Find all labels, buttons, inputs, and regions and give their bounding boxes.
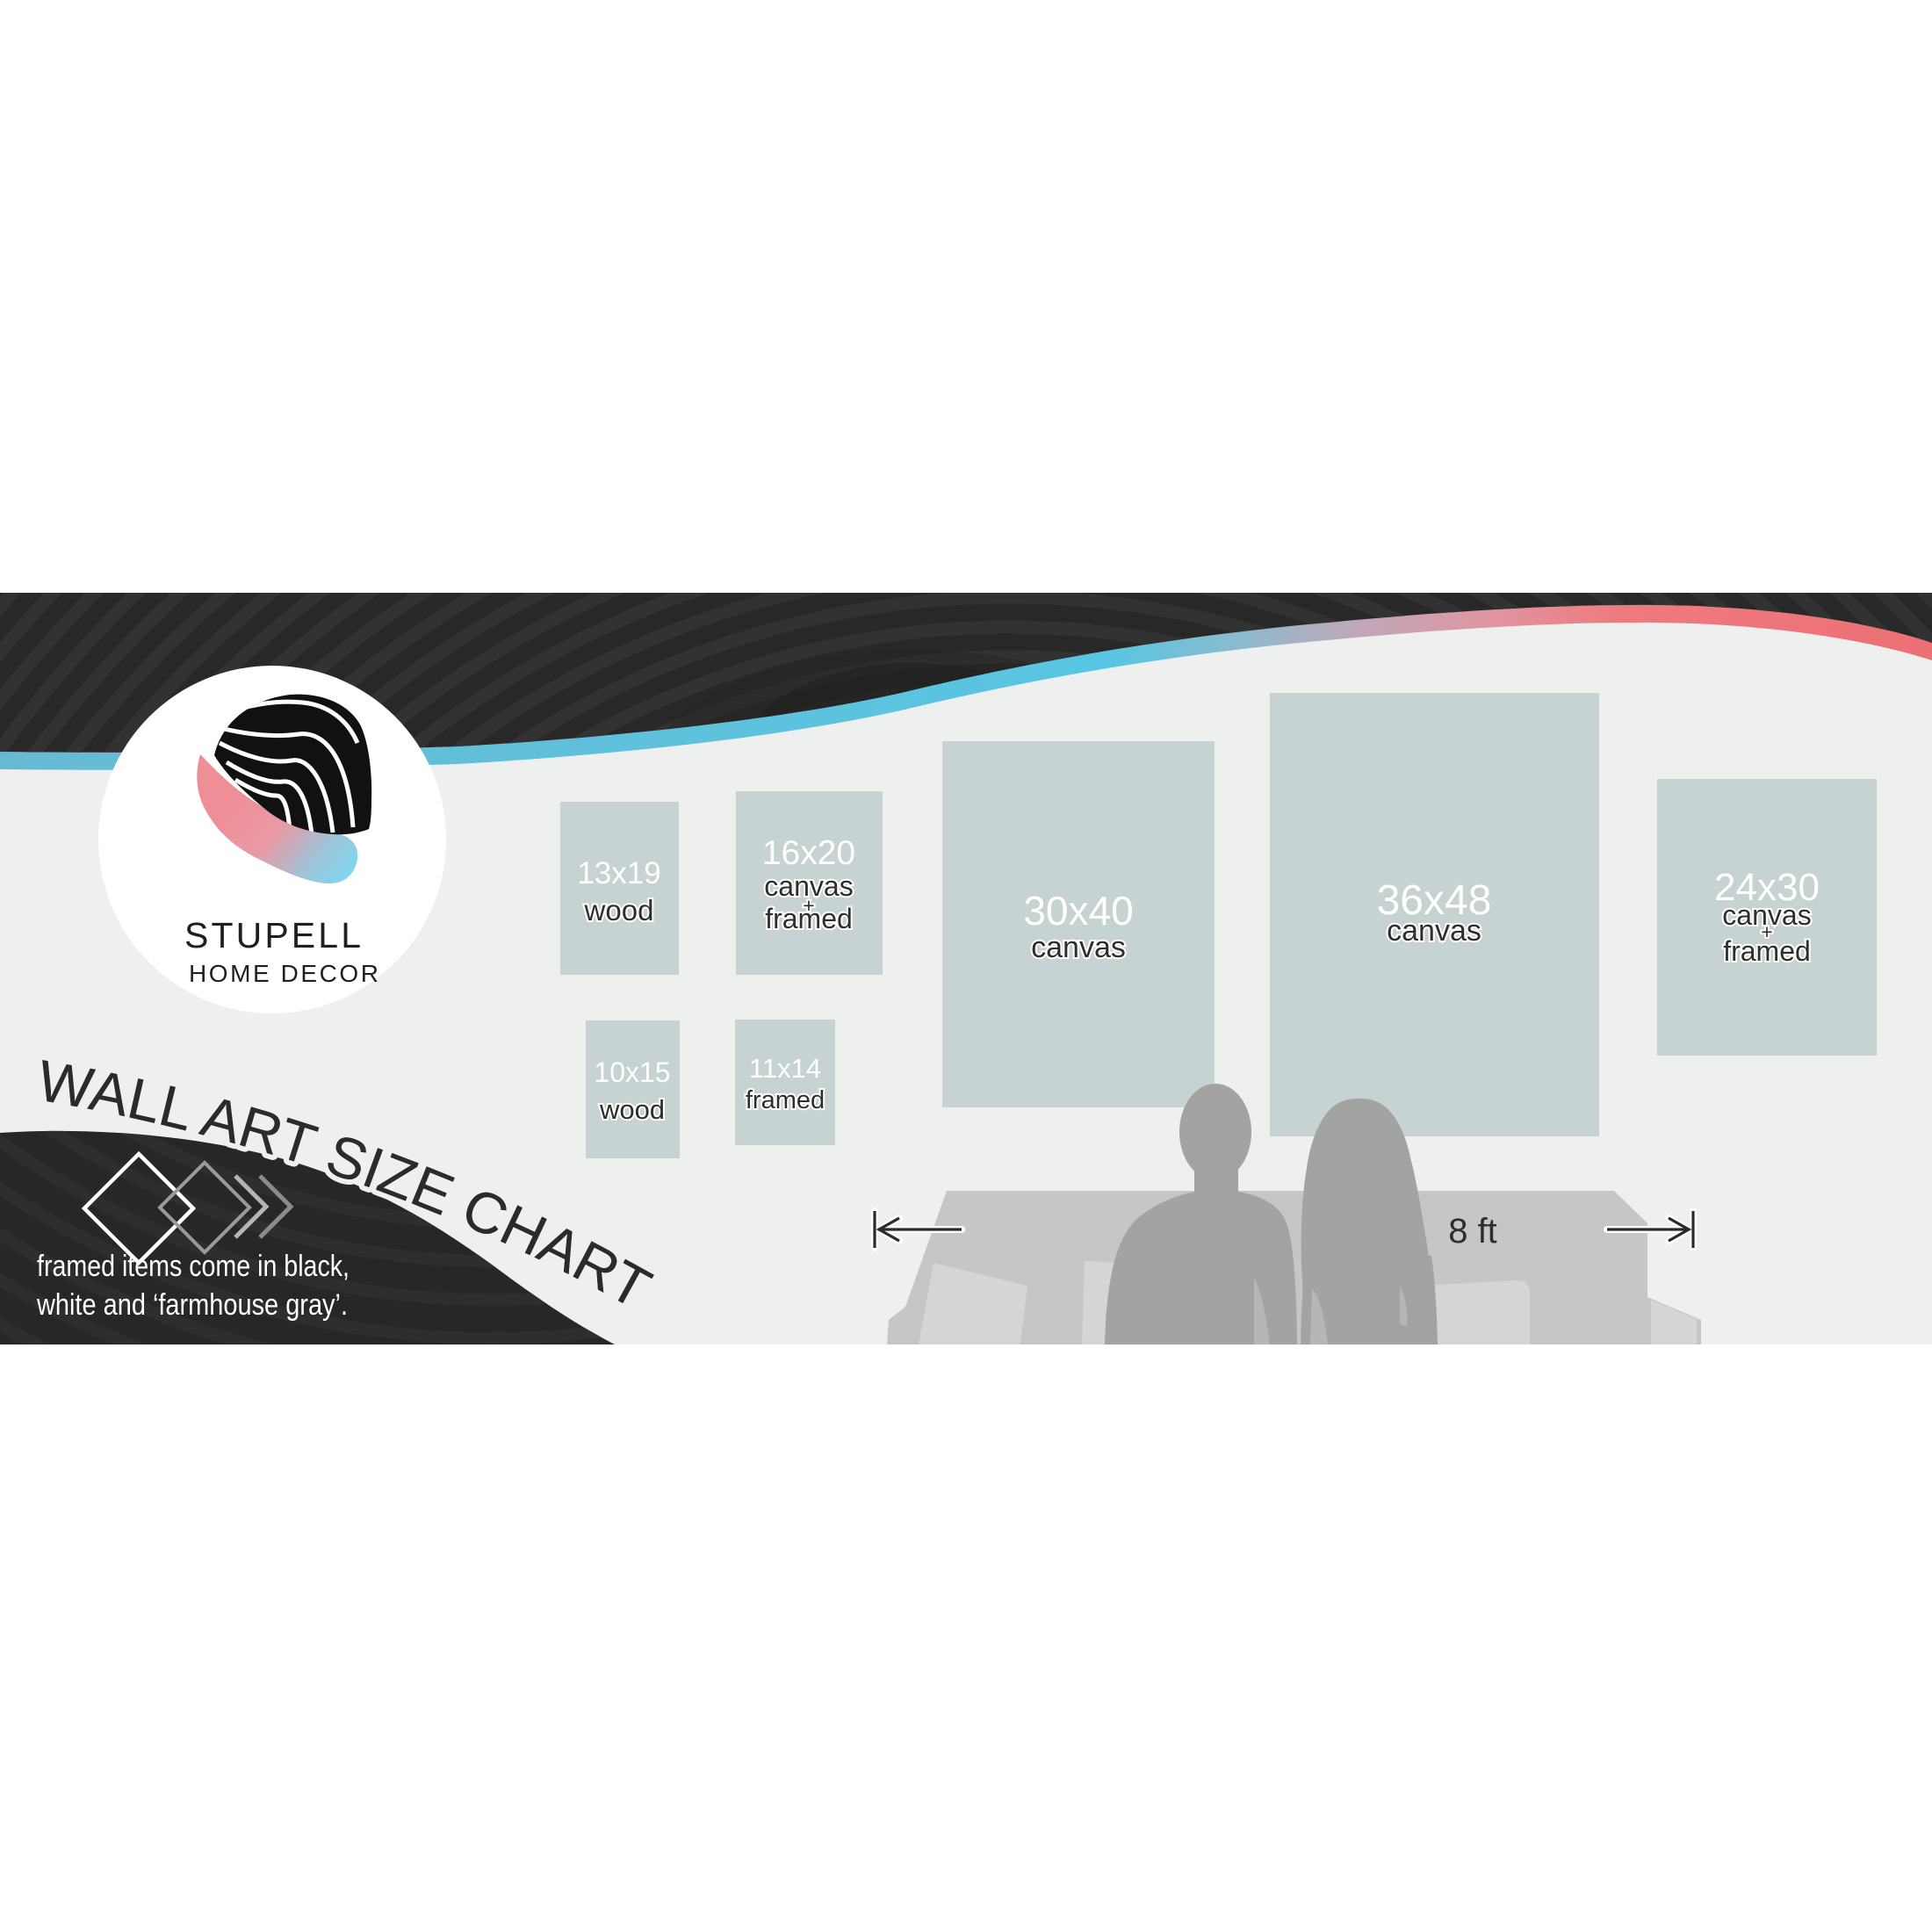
svg-text:canvas: canvas <box>1031 931 1126 964</box>
svg-text:canvas: canvas <box>1387 914 1481 948</box>
svg-text:16x20: 16x20 <box>762 834 855 872</box>
svg-text:framed: framed <box>765 903 853 934</box>
svg-text:30x40: 30x40 <box>1023 888 1133 934</box>
svg-text:framed: framed <box>746 1086 825 1114</box>
svg-text:8 ft: 8 ft <box>1448 1212 1497 1251</box>
svg-text:13x19: 13x19 <box>577 856 660 890</box>
svg-text:10x15: 10x15 <box>594 1056 670 1088</box>
svg-text:white and ‘farmhouse gray’.: white and ‘farmhouse gray’. <box>36 1288 348 1322</box>
svg-text:framed items come in black,: framed items come in black, <box>37 1250 350 1283</box>
svg-text:11x14: 11x14 <box>749 1053 821 1084</box>
svg-text:HOME DECOR: HOME DECOR <box>189 960 378 987</box>
svg-text:wood: wood <box>584 894 654 926</box>
svg-text:wood: wood <box>599 1094 665 1125</box>
svg-text:STUPELL: STUPELL <box>184 915 361 955</box>
svg-text:framed: framed <box>1723 935 1811 967</box>
